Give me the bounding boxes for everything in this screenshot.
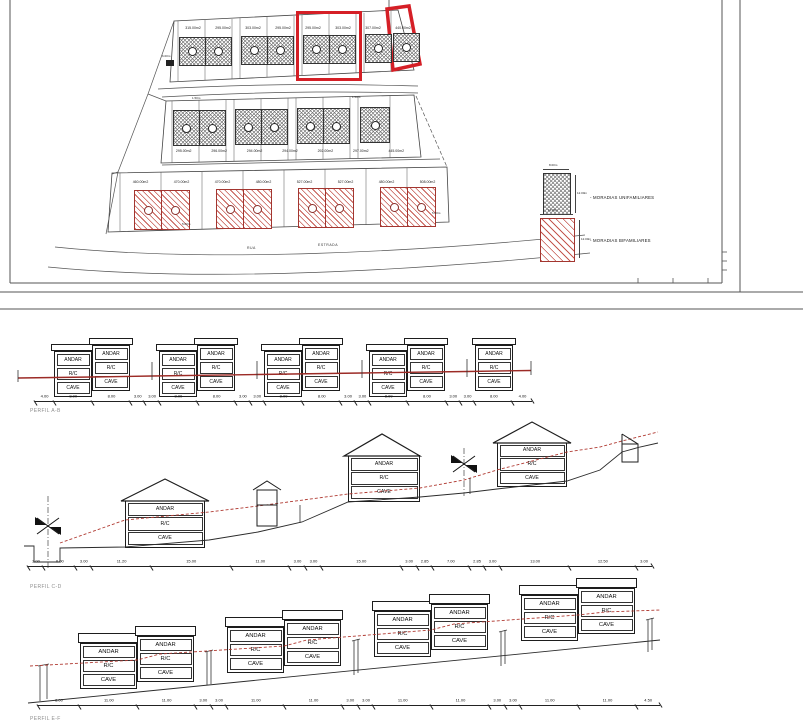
floor-rc: R/C	[128, 517, 203, 530]
house-section: ANDAR R/C CAVE	[54, 351, 92, 397]
dimension-value: 3.00	[489, 560, 497, 569]
dimension-segment: 8.00	[370, 395, 408, 404]
floor-cave: CAVE	[478, 376, 511, 388]
floor-cave: CAVE	[140, 667, 192, 679]
plan-dim: 5.00m	[432, 212, 440, 215]
floor-andar: ANDAR	[500, 445, 565, 457]
floor-cave: CAVE	[287, 651, 339, 663]
house-section: ANDAR R/C CAVE	[284, 620, 341, 666]
plot-area-label: 480.00m2	[366, 180, 407, 185]
roof-cap	[135, 626, 196, 636]
plot-area-label: 294.00m2	[272, 149, 307, 154]
dimension-value: 3.00	[239, 395, 247, 404]
dimension-value: 3.00	[359, 395, 367, 404]
floor-rc: R/C	[305, 362, 338, 374]
dimension-value: 12.50	[598, 560, 608, 569]
dimension-value: 8.00	[490, 395, 498, 404]
floor-rc: R/C	[410, 362, 443, 374]
floor-rc: R/C	[478, 362, 511, 374]
dimension-value: 8.00	[423, 395, 431, 404]
dimension-value: 8.00	[108, 395, 116, 404]
dimension-value: 15.00	[186, 560, 196, 569]
floor-cave: CAVE	[57, 382, 90, 394]
floor-rc: R/C	[200, 362, 233, 374]
plot-labels-bottom: 460.00m2470.00m2470.00m2480.00m2527.00m2…	[120, 180, 448, 185]
dimension-value: 8.00	[55, 699, 63, 708]
dimension-value: 3.00	[344, 395, 352, 404]
dimension-value: 11.00	[104, 699, 114, 708]
dimension-value: 8.00	[174, 395, 182, 404]
plot-area-label: 527.00m2	[325, 180, 366, 185]
dimension-segment: 11.00	[138, 699, 196, 708]
floor-rc: R/C	[140, 653, 192, 665]
plot-area-label: 295.00m2	[208, 26, 238, 31]
dimension-value: 11.00	[255, 560, 265, 569]
dimension-value: 4.00	[41, 395, 49, 404]
floor-rc: R/C	[267, 368, 300, 380]
floor-andar: ANDAR	[230, 630, 282, 642]
floor-cave: CAVE	[434, 635, 486, 647]
house-section: ANDAR R/C CAVE	[159, 351, 197, 397]
plot-area-label: 303.00m2	[328, 26, 358, 31]
building-square	[235, 109, 262, 145]
frame-ruler-ticks	[638, 252, 727, 283]
house-section: ANDAR R/C CAVE	[369, 351, 407, 397]
floor-andar: ANDAR	[377, 614, 429, 626]
floor-andar: ANDAR	[305, 348, 338, 360]
floor-rc: R/C	[83, 660, 135, 672]
dimension-value: 3.00	[32, 560, 40, 569]
dimension-segment: 3.00	[401, 560, 417, 569]
dimension-value: 2.85	[421, 560, 429, 569]
dimension-segment: 3.00	[195, 699, 211, 708]
floor-cave: CAVE	[162, 382, 195, 394]
roof-cap	[51, 344, 95, 351]
plot-area-label: 292.00m2	[308, 149, 343, 154]
dimension-segment: 4.50	[636, 699, 660, 708]
house-section: ANDAR R/C CAVE	[92, 345, 130, 391]
floor-rc: R/C	[95, 362, 128, 374]
floor-cave: CAVE	[95, 376, 128, 388]
plot-area-label: 295.00m2	[268, 26, 298, 31]
floor-andar: ANDAR	[287, 623, 339, 635]
dimension-value: 11.20	[117, 560, 127, 569]
roof-cap	[366, 344, 410, 351]
plot-area-label: 294.00m2	[237, 149, 272, 154]
floor-andar: ANDAR	[351, 458, 418, 471]
plot-area-label: 527.00m2	[284, 180, 325, 185]
house-section: ANDAR R/C CAVE	[431, 604, 488, 650]
dimension-segment: 11.00	[374, 699, 432, 708]
roof-cap	[156, 344, 200, 351]
building-square	[360, 107, 390, 143]
dimension-value: 8.00	[213, 395, 221, 404]
plot-area-label: 295.00m2	[298, 26, 328, 31]
dimension-value: 11.00	[309, 699, 319, 708]
plot-area-label: 470.00m2	[161, 180, 202, 185]
dimension-value: 3.00	[310, 560, 318, 569]
dimension-segment: 11.00	[227, 699, 285, 708]
building-square-red	[216, 189, 245, 229]
floor-rc: R/C	[57, 368, 90, 380]
roof-cap	[576, 578, 637, 588]
floor-rc: R/C	[377, 628, 429, 640]
dimension-segment: 11.00	[432, 699, 490, 708]
dimension-value: 15.00	[356, 560, 366, 569]
dimension-segment: 8.00	[198, 395, 236, 404]
house-section: ANDAR R/C CAVE	[374, 611, 431, 657]
plot-area-label: 297.00m2	[343, 149, 378, 154]
building-square	[297, 108, 324, 144]
plot-area-label: 470.00m2	[202, 180, 243, 185]
dimension-value: 7.00	[447, 560, 455, 569]
floor-cave: CAVE	[500, 472, 565, 484]
floor-andar: ANDAR	[140, 639, 192, 651]
dimension-segment: 11.00	[231, 560, 289, 569]
dimension-value: 3.00	[449, 395, 457, 404]
roof-cap	[225, 617, 286, 627]
dimension-segment: 11.20	[92, 560, 152, 569]
house-section: ANDAR R/C CAVE	[302, 345, 340, 391]
floor-rc: R/C	[524, 612, 576, 624]
dimension-value: 3.00	[464, 395, 472, 404]
floor-rc: R/C	[351, 472, 418, 485]
building-square-red	[325, 188, 354, 228]
dimension-value: 3.00	[509, 699, 517, 708]
floor-cave: CAVE	[267, 382, 300, 394]
plot-labels-top: 315.00m2295.00m2303.00m2295.00m2295.00m2…	[178, 26, 418, 31]
roof-cap	[404, 338, 448, 345]
building-square	[199, 110, 226, 146]
building-square	[173, 110, 200, 146]
floor-andar: ANDAR	[581, 591, 633, 603]
legend-dim-line	[543, 169, 569, 170]
legend-label-bifamiliar: - MORADIAS BIFAMILIARES	[590, 238, 651, 243]
dimension-value: 3.00	[215, 699, 223, 708]
profile-cd-title: PERFIL C-D	[30, 584, 62, 590]
dimension-segment: 15.00	[151, 560, 231, 569]
dimension-value: 6.00	[56, 560, 64, 569]
drawing-sheet: 315.00m2295.00m2303.00m2295.00m2295.00m2…	[0, 0, 803, 720]
dimension-segment: 6.00	[44, 560, 76, 569]
plan-dim: 1.50m	[192, 97, 200, 100]
legend-dim-width: 11.00m	[548, 209, 558, 212]
floor-cave: CAVE	[230, 658, 282, 670]
plan-dim: 5.00m	[182, 223, 190, 226]
floor-andar: ANDAR	[162, 354, 195, 366]
dimension-value: 8.00	[69, 395, 77, 404]
dimension-segment: 4.00	[35, 395, 54, 404]
floor-andar: ANDAR	[57, 354, 90, 366]
house-section: ANDAR R/C CAVE	[475, 345, 513, 391]
dimension-segment: 8.00	[159, 395, 197, 404]
floor-rc: R/C	[372, 368, 405, 380]
outbuilding	[253, 481, 281, 526]
roof-cap	[519, 585, 580, 595]
roof-cap	[194, 338, 238, 345]
floor-rc: R/C	[162, 368, 195, 380]
house-section-pitched: ANDAR R/C CAVE	[125, 500, 205, 548]
floor-andar: ANDAR	[478, 348, 511, 360]
plot-area-label: 303.00m2	[238, 26, 268, 31]
plot-area-label: 508.00m2	[407, 180, 448, 185]
dimension-value: 13.00	[530, 560, 540, 569]
roof-cap	[261, 344, 305, 351]
dimension-segment: 8.00	[475, 395, 513, 404]
roof-cap	[78, 633, 139, 643]
dimension-value: 8.00	[318, 395, 326, 404]
dimension-segment: 8.00	[38, 699, 80, 708]
floor-andar: ANDAR	[95, 348, 128, 360]
plot-area-label: 295.00m2	[166, 149, 201, 154]
dimension-chain-ef: 8.00 11.00 11.00 3.00 3.00 11.00 11.00	[38, 699, 660, 708]
dimension-value: 3.00	[405, 560, 413, 569]
floor-cave: CAVE	[410, 376, 443, 388]
plot-area-label: 315.00m2	[178, 26, 208, 31]
house-section: ANDAR R/C CAVE	[137, 636, 194, 682]
building-square	[261, 109, 288, 145]
floor-cave: CAVE	[524, 626, 576, 638]
floor-andar: ANDAR	[524, 598, 576, 610]
dimension-value: 3.00	[253, 395, 261, 404]
building-square	[393, 33, 420, 62]
highlight-rect-plots-5-6	[296, 11, 362, 81]
floor-cave: CAVE	[377, 642, 429, 654]
roof-cap	[472, 338, 516, 345]
floor-rc: R/C	[230, 644, 282, 656]
dimension-value: 8.00	[385, 395, 393, 404]
survey-marker-icon	[451, 448, 477, 496]
house-section: ANDAR R/C CAVE	[407, 345, 445, 391]
floor-andar: ANDAR	[434, 607, 486, 619]
building-square	[179, 37, 206, 66]
dimension-segment: 11.00	[521, 699, 579, 708]
floor-rc: R/C	[434, 621, 486, 633]
roof-cap	[282, 610, 343, 620]
floor-cave: CAVE	[372, 382, 405, 394]
dimension-value: 3.00	[346, 699, 354, 708]
dimension-segment: 8.00	[54, 395, 92, 404]
floor-cave: CAVE	[200, 376, 233, 388]
dimension-segment: 8.00	[92, 395, 130, 404]
dimension-segment: 13.00	[501, 560, 570, 569]
dimension-segment: 8.00	[264, 395, 302, 404]
roof-cap	[89, 338, 133, 345]
legend-dim-width: 8.00m	[549, 164, 557, 167]
dimension-segment: 8.00	[303, 395, 341, 404]
floor-rc: R/C	[500, 458, 565, 470]
house-section: ANDAR R/C CAVE	[80, 643, 137, 689]
plan-dim: 1.50m	[352, 96, 360, 99]
dimension-value: 3.00	[148, 395, 156, 404]
legend-dim-line	[540, 214, 573, 215]
floor-andar: ANDAR	[267, 354, 300, 366]
dimension-value: 3.00	[199, 699, 207, 708]
dimension-value: 3.00	[640, 560, 648, 569]
house-section: ANDAR R/C CAVE	[578, 588, 635, 634]
dimension-value: 3.00	[493, 699, 501, 708]
profile-ab-title: PERFIL A-B	[30, 408, 61, 414]
house-section-pitched: ANDAR R/C CAVE	[497, 442, 567, 487]
legend-label-unifamiliar: - MORADIAS UNIFAMILIARES	[590, 195, 654, 200]
plot-area-label: 296.00m2	[201, 149, 236, 154]
dimension-chain-ab: 4.00 8.00 8.00 3.00 3.00 8.00 8.00	[35, 395, 532, 404]
dimension-segment: 12.50	[570, 560, 636, 569]
boundary-marker	[166, 60, 174, 66]
dimension-value: 11.00	[545, 699, 555, 708]
house-section: ANDAR R/C CAVE	[227, 627, 284, 673]
dimension-segment: 11.00	[80, 699, 138, 708]
house-section: ANDAR R/C CAVE	[197, 345, 235, 391]
floor-andar: ANDAR	[83, 646, 135, 658]
dimension-segment: 8.00	[408, 395, 446, 404]
road-label-rua: RUA	[247, 246, 256, 250]
dimension-segment: 11.00	[579, 699, 637, 708]
dimension-value: 4.50	[644, 699, 652, 708]
floor-rc: R/C	[581, 605, 633, 617]
dimension-value: 11.00	[603, 699, 613, 708]
dimension-value: 11.00	[456, 699, 466, 708]
plot-area-label: 307.00m2	[358, 26, 388, 31]
building-square	[205, 37, 232, 66]
dimension-segment: 11.00	[285, 699, 343, 708]
roof-cap	[429, 594, 490, 604]
building-square-red	[134, 190, 163, 230]
legend-dim-line	[579, 220, 580, 258]
dimension-value: 3.00	[134, 395, 142, 404]
profile-ef-title: PERFIL E-F	[30, 716, 61, 720]
roof-cap	[299, 338, 343, 345]
building-square-red	[298, 188, 327, 228]
road-label-estrada: ESTRADA	[318, 243, 338, 247]
building-square	[365, 34, 392, 63]
dimension-value: 8.00	[280, 395, 288, 404]
legend-dim-line	[575, 175, 576, 213]
plot-area-label: 440.00m2	[388, 26, 418, 31]
dimension-value: 2.85	[473, 560, 481, 569]
roof-cap	[372, 601, 433, 611]
house-section: ANDAR R/C CAVE	[521, 595, 578, 641]
floor-cave: CAVE	[581, 619, 633, 631]
dimension-segment: 15.00	[321, 560, 401, 569]
floor-cave: CAVE	[83, 674, 135, 686]
legend-dim-height: 12.00m	[577, 192, 587, 195]
house-section-pitched: ANDAR R/C CAVE	[348, 455, 420, 502]
dimension-value: 11.00	[251, 699, 261, 708]
building-square	[241, 36, 268, 65]
plan-dim: 6.00m	[162, 55, 170, 58]
dimension-value: 4.00	[519, 395, 527, 404]
floor-andar: ANDAR	[128, 503, 203, 516]
building-square	[267, 36, 294, 65]
dimension-value: 3.00	[362, 699, 370, 708]
dimension-segment: 7.00	[432, 560, 469, 569]
dimension-value: 11.00	[398, 699, 408, 708]
floor-andar: ANDAR	[200, 348, 233, 360]
floor-cave: CAVE	[351, 486, 418, 499]
dimension-value: 11.00	[162, 699, 172, 708]
floor-andar: ANDAR	[410, 348, 443, 360]
floor-cave: CAVE	[305, 376, 338, 388]
plot-area-label: 480.00m2	[243, 180, 284, 185]
dimension-segment: 3.00	[342, 699, 358, 708]
building-square-red	[243, 189, 272, 229]
building-square-red	[407, 187, 436, 227]
legend-swatch-bifamiliar	[540, 218, 575, 262]
outbuilding	[622, 434, 638, 462]
house-section: ANDAR R/C CAVE	[264, 351, 302, 397]
dimension-segment: 3.00	[489, 699, 505, 708]
plot-area-label: 445.00m2	[379, 149, 414, 154]
plot-area-label: 460.00m2	[120, 180, 161, 185]
dimension-segment: 3.00	[636, 560, 652, 569]
dimension-chain-cd: 3.00 6.00 3.00 11.20 15.00 11.00 3.00	[28, 560, 652, 569]
dimension-value: 3.00	[294, 560, 302, 569]
dimension-segment: 4.00	[513, 395, 532, 404]
plot-labels-middle: 295.00m2296.00m2294.00m2294.00m2292.00m2…	[166, 149, 414, 154]
building-square-red	[380, 187, 409, 227]
floor-cave: CAVE	[128, 532, 203, 545]
building-square	[323, 108, 350, 144]
floor-andar: ANDAR	[372, 354, 405, 366]
floor-rc: R/C	[287, 637, 339, 649]
dimension-value: 3.00	[80, 560, 88, 569]
